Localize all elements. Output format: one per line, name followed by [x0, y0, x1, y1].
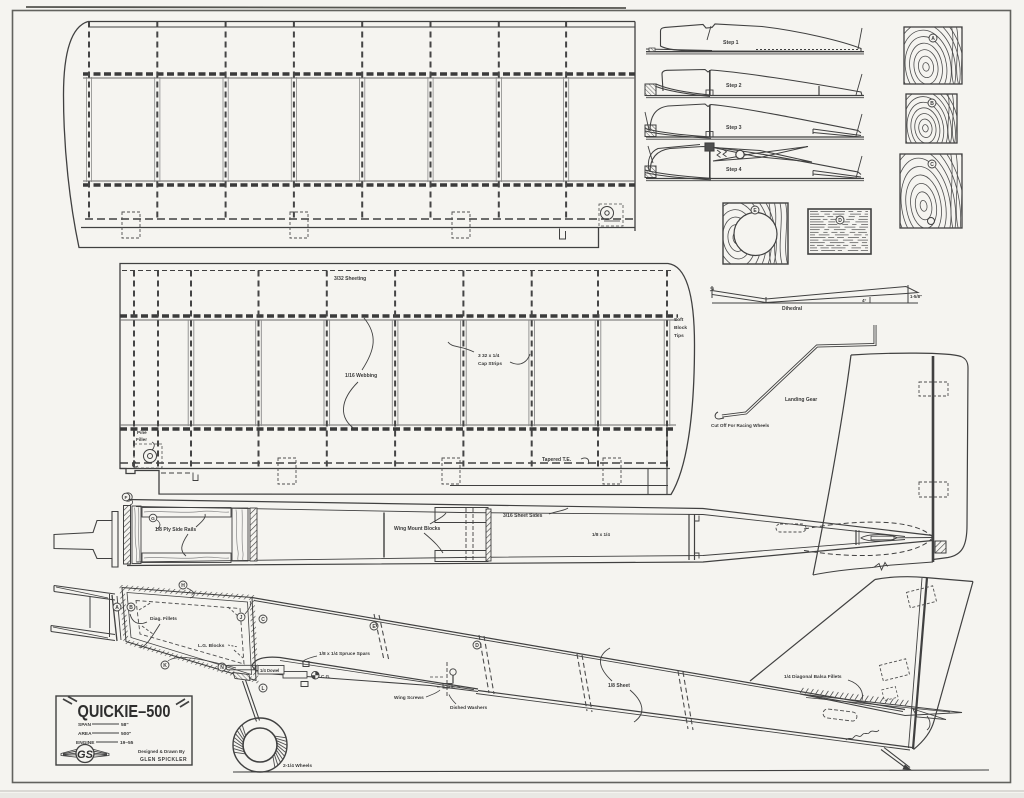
svg-text:58": 58": [121, 722, 129, 728]
svg-text:Step 3: Step 3: [726, 125, 742, 131]
svg-text:Landing Gear: Landing Gear: [785, 397, 817, 403]
svg-text:Dihedral: Dihedral: [782, 306, 803, 312]
svg-text:4°: 4°: [862, 298, 867, 303]
svg-text:3/32 Sheeting: 3/32 Sheeting: [334, 276, 366, 282]
svg-text:Cap Strips: Cap Strips: [478, 361, 502, 367]
svg-text:1/8 x 1/4: 1/8 x 1/4: [592, 532, 610, 537]
svg-text:GS: GS: [77, 749, 94, 761]
svg-text:1-5/8": 1-5/8": [910, 294, 922, 299]
svg-text:Pine: Pine: [137, 430, 147, 435]
svg-text:1/8 x 1/4 Spruce Spars: 1/8 x 1/4 Spruce Spars: [319, 651, 370, 657]
svg-text:J: J: [240, 615, 243, 621]
svg-text:3/16 Sheet Sides: 3/16 Sheet Sides: [503, 513, 543, 519]
svg-text:Tips: Tips: [674, 333, 684, 339]
svg-text:2-1/4 Wheels: 2-1/4 Wheels: [283, 763, 312, 769]
svg-text:H: H: [181, 583, 185, 589]
svg-text:D: D: [838, 218, 842, 224]
svg-text:Wing Mount Blocks: Wing Mount Blocks: [394, 526, 441, 532]
svg-text:1/8 Ply Side Rails: 1/8 Ply Side Rails: [155, 527, 196, 533]
svg-text:GLEN SPICKLER: GLEN SPICKLER: [140, 757, 187, 763]
svg-text:Diag. Fillets: Diag. Fillets: [150, 616, 177, 622]
svg-text:Dished Washers: Dished Washers: [450, 705, 487, 711]
svg-text:Wing Screws: Wing Screws: [394, 695, 424, 701]
svg-text:1/8 Sheet: 1/8 Sheet: [608, 683, 630, 689]
svg-text:Step 1: Step 1: [723, 40, 739, 46]
svg-text:C: C: [930, 162, 934, 168]
svg-text:SPAN: SPAN: [78, 722, 92, 728]
svg-text:500": 500": [121, 731, 131, 737]
svg-text:Soft: Soft: [674, 317, 684, 323]
svg-text:Tapered T.E.: Tapered T.E.: [542, 457, 572, 463]
svg-text:AREA: AREA: [78, 731, 92, 737]
svg-text:L: L: [261, 686, 264, 692]
svg-text:A: A: [931, 36, 935, 42]
svg-text:1/4 Dowel: 1/4 Dowel: [260, 668, 279, 673]
svg-text:C.G.: C.G.: [321, 674, 330, 679]
svg-text:N: N: [220, 665, 224, 671]
svg-text:C: C: [261, 617, 265, 623]
svg-text:Cut Off For Racing Wheels: Cut Off For Racing Wheels: [711, 423, 770, 428]
svg-text:1/16 Webbing: 1/16 Webbing: [345, 373, 377, 379]
svg-text:Filler: Filler: [136, 437, 147, 442]
svg-text:B: B: [129, 605, 133, 611]
svg-text:K: K: [163, 663, 167, 669]
svg-text:1/4 Diagonal Balsa Fillets: 1/4 Diagonal Balsa Fillets: [784, 674, 842, 680]
svg-text:3 32 x 1/4: 3 32 x 1/4: [478, 353, 500, 359]
svg-text:Designed & Drawn By: Designed & Drawn By: [138, 749, 185, 754]
svg-text:Step 2: Step 2: [726, 83, 742, 89]
svg-text:B: B: [930, 101, 934, 107]
svg-text:QUICKIE–500: QUICKIE–500: [78, 701, 171, 721]
svg-text:Step 4: Step 4: [726, 167, 742, 173]
svg-text:Block: Block: [674, 325, 687, 331]
svg-text:F: F: [125, 495, 128, 501]
svg-text:L.G. Blocks: L.G. Blocks: [198, 643, 225, 649]
svg-text:G: G: [151, 516, 155, 522]
svg-text:A: A: [115, 605, 119, 611]
svg-text:19–55: 19–55: [120, 740, 134, 746]
svg-text:D: D: [475, 643, 479, 649]
